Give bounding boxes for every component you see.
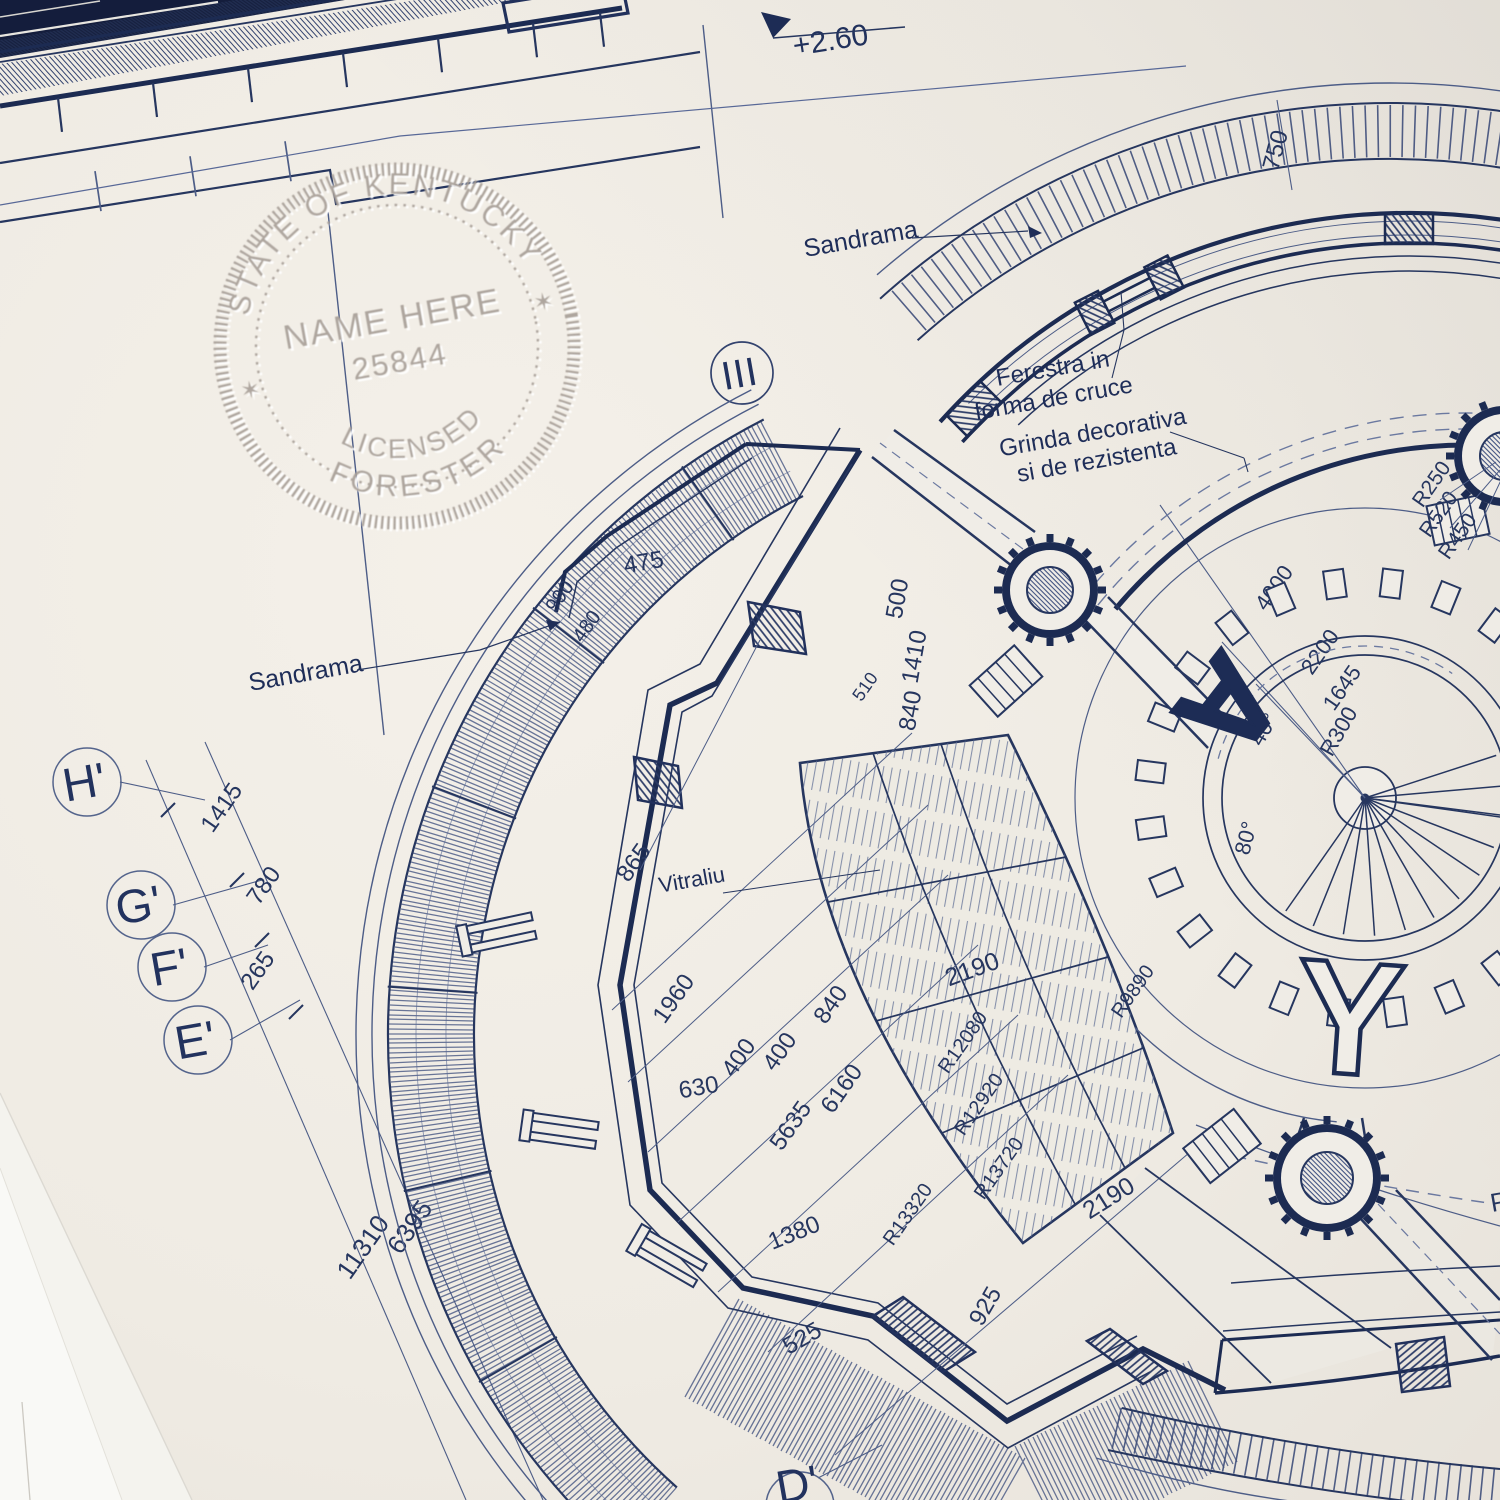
svg-text:H': H' (58, 752, 109, 812)
svg-text:G': G' (111, 875, 165, 935)
svg-text:III: III (718, 349, 761, 399)
svg-text:Y: Y (1289, 924, 1409, 1112)
